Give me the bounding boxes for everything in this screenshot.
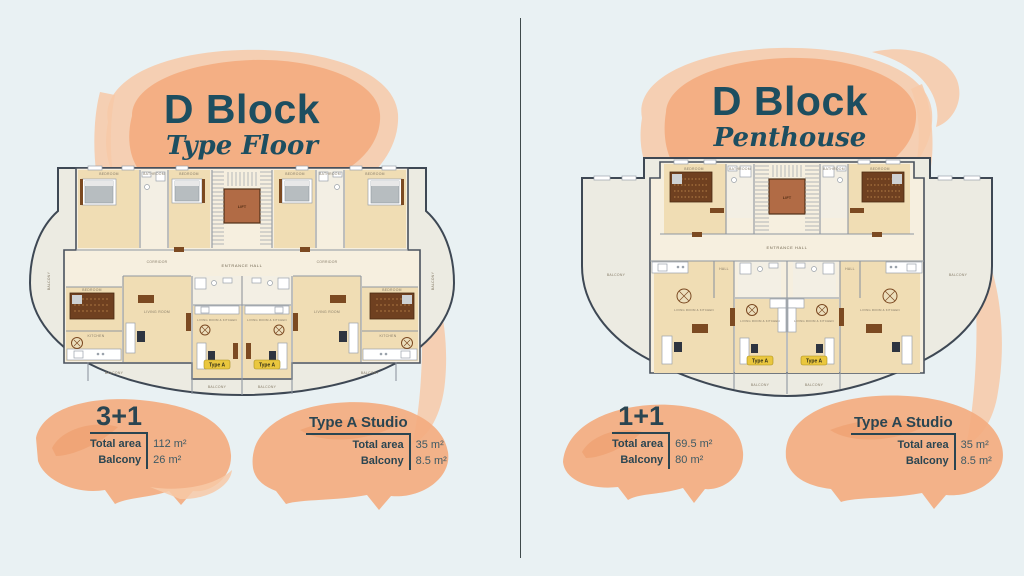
room-label-lift: LIFT — [238, 204, 247, 209]
right-unit-info: 1+1 Total area 69.5 m² Balcony 80 m² — [612, 403, 712, 469]
left-studio-info: Type A Studio Total area 35 m² Balcony 8… — [306, 414, 447, 470]
info-label: Total area — [612, 434, 670, 453]
right-studio-info: Type A Studio Total area 35 m² Balcony 8… — [851, 414, 992, 470]
studio-name: Type A Studio — [851, 414, 956, 435]
info-label: Total area — [851, 435, 956, 454]
dining-table — [72, 338, 83, 349]
kitchen-counter — [67, 349, 121, 360]
room-label-balcony: BALCONY — [361, 371, 380, 375]
info-value: 26 m² — [148, 453, 186, 469]
room-label-entrance-hall: ENTRANCE HALL — [767, 245, 808, 250]
room-label-corridor: CORRIDOR — [147, 260, 168, 264]
info-value: 112 m² — [148, 434, 186, 453]
room-label-living-room: LIVING ROOM — [314, 310, 340, 314]
room-label-balcony: BALCONY — [949, 273, 968, 277]
room-label-bedroom: BEDROOM — [382, 288, 402, 292]
info-label: Balcony — [90, 453, 148, 469]
right-title: D Block — [665, 80, 915, 123]
studio-name: Type A Studio — [306, 414, 411, 435]
info-label: Balcony — [306, 454, 411, 470]
floorplan-penthouse: LIFT ENTRANCE HALL BEDROOM BEDROOM BATHR… — [564, 148, 1010, 400]
info-value: 8.5 m² — [411, 454, 447, 470]
panel-divider — [520, 18, 521, 558]
brochure-page: D Block Type Floor D Block Penthouse — [0, 0, 1024, 576]
room-label-living-room-kitchen: LIVING ROOM & KITCHEN — [674, 308, 714, 312]
room-label-balcony: BALCONY — [208, 385, 227, 389]
room-label-bathroom: BATHROOM — [319, 172, 341, 176]
type-a-label: Type A — [259, 363, 276, 369]
room-label-bathroom: BATHROOM — [729, 167, 751, 171]
room-label-kitchen: KITCHEN — [380, 334, 397, 338]
room-label-bathroom: BATHROOM — [143, 172, 165, 176]
info-value: 8.5 m² — [956, 454, 992, 470]
room-label-bedroom: BEDROOM — [82, 288, 102, 292]
room-label-entrance-hall: ENTRANCE HALL — [222, 263, 263, 268]
unit-name: 3+1 — [90, 403, 148, 434]
room-label-balcony: BALCONY — [805, 383, 824, 387]
room-label-living-room-kitchen: LIVING ROOM & KITCHEN — [860, 308, 900, 312]
type-a-label: Type A — [806, 359, 823, 365]
info-label: Total area — [90, 434, 148, 453]
room-label-hall: HALL — [719, 267, 729, 271]
room-label-living-room-kitchen: LIVING ROOM & KITCHEN — [794, 319, 834, 323]
info-label: Balcony — [612, 453, 670, 469]
room-label-kitchen: KITCHEN — [88, 334, 105, 338]
room-label-balcony: BALCONY — [258, 385, 277, 389]
room-label-living-room-kitchen: LIVING ROOM & KITCHEN — [247, 318, 287, 322]
room-label-living-room-kitchen: LIVING ROOM & KITCHEN — [740, 319, 780, 323]
room-label-balcony: BALCONY — [751, 383, 770, 387]
type-a-label: Type A — [752, 359, 769, 365]
left-panel-title: D Block Type Floor — [117, 88, 367, 161]
room-label-balcony: BALCONY — [105, 371, 124, 375]
room-label-living-room: LIVING ROOM — [144, 310, 170, 314]
kitchen-counter — [652, 262, 688, 273]
type-a-label: Type A — [209, 363, 226, 369]
room-label-hall: HALL — [845, 267, 855, 271]
furniture-bed-dark — [70, 293, 114, 319]
room-label-bedroom: BEDROOM — [870, 167, 890, 171]
room-label-bedroom: BEDROOM — [684, 167, 704, 171]
room-label-balcony: BALCONY — [47, 271, 51, 290]
right-panel-title: D Block Penthouse — [665, 80, 915, 153]
room-label-bedroom: BEDROOM — [365, 172, 385, 176]
room-label-bedroom: BEDROOM — [285, 172, 305, 176]
info-label: Total area — [306, 435, 411, 454]
room-label-corridor: CORRIDOR — [317, 260, 338, 264]
room-label-balcony: BALCONY — [607, 273, 626, 277]
room-label-lift: LIFT — [783, 195, 792, 200]
info-label: Balcony — [851, 454, 956, 470]
left-unit-info: 3+1 Total area 112 m² Balcony 26 m² — [90, 403, 187, 469]
floorplan-type-floor: LIFT ENTRANCE HALL BEDROOM BEDROOM BEDRO… — [26, 155, 458, 397]
info-value: 69.5 m² — [670, 434, 712, 453]
room-label-bathroom: BATHROOM — [823, 167, 845, 171]
room-label-bedroom: BEDROOM — [99, 172, 119, 176]
room-label-living-room-kitchen: LIVING ROOM & KITCHEN — [197, 318, 237, 322]
room-label-bedroom: BEDROOM — [179, 172, 199, 176]
room-label-balcony: BALCONY — [431, 271, 435, 290]
info-value: 35 m² — [956, 435, 992, 454]
unit-name: 1+1 — [612, 403, 670, 434]
info-value: 35 m² — [411, 435, 447, 454]
left-title: D Block — [117, 88, 367, 131]
info-value: 80 m² — [670, 453, 712, 469]
